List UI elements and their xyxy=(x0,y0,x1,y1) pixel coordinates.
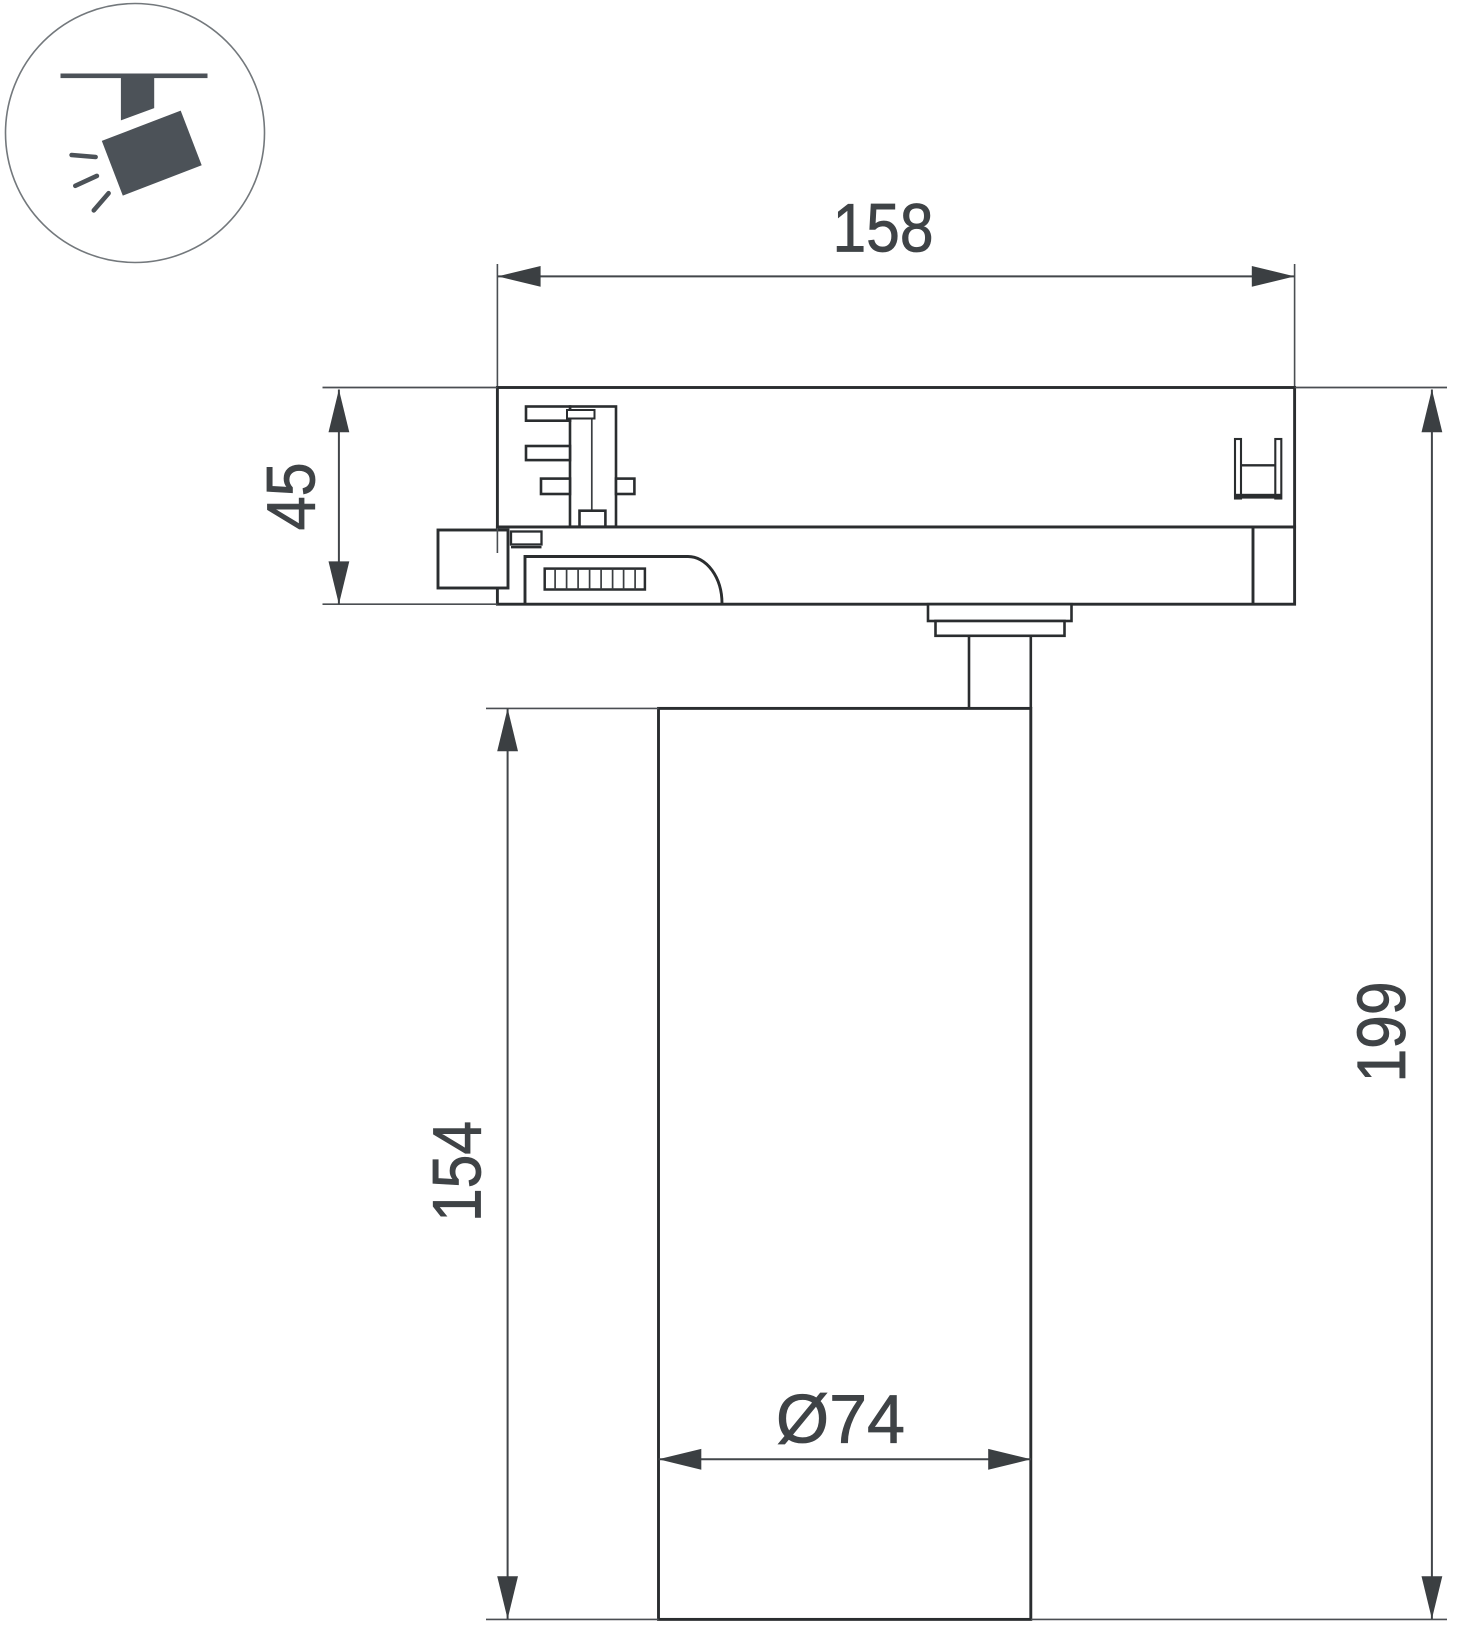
svg-text:154: 154 xyxy=(418,1121,495,1222)
svg-text:45: 45 xyxy=(253,462,330,530)
svg-text:158: 158 xyxy=(833,190,934,267)
svg-text:Ø74: Ø74 xyxy=(776,1381,905,1458)
svg-text:199: 199 xyxy=(1343,982,1420,1083)
